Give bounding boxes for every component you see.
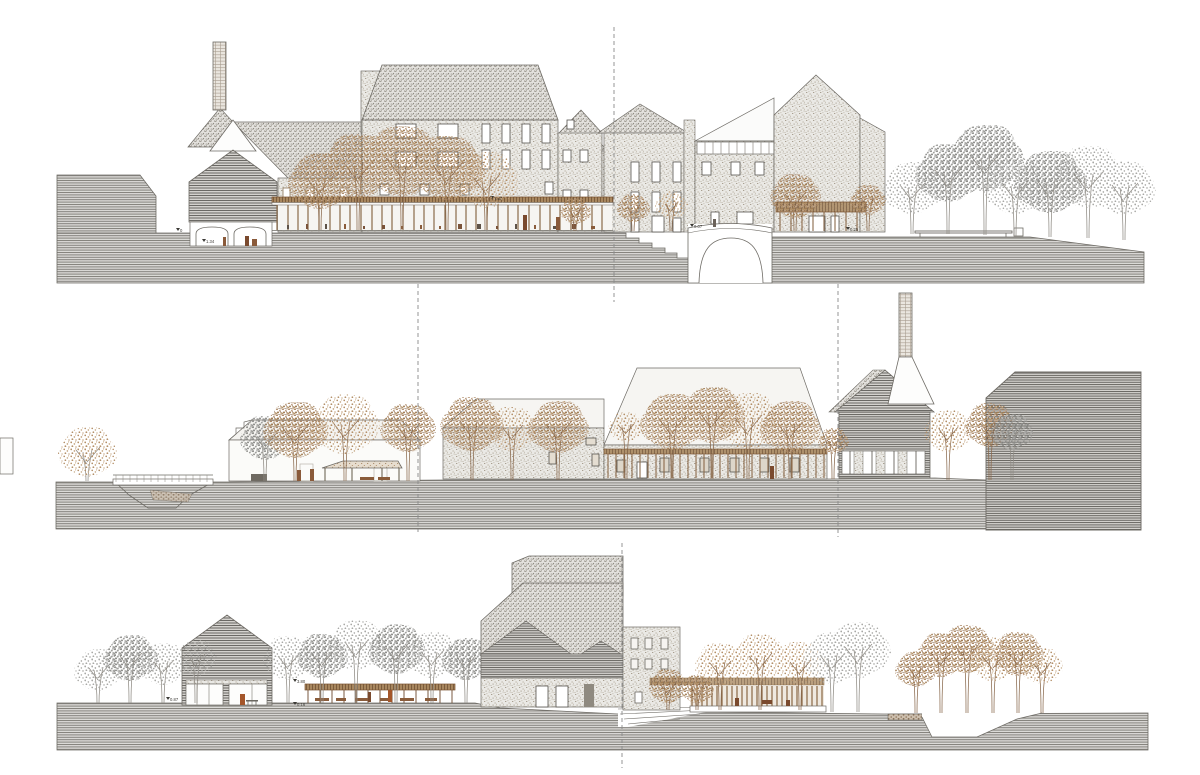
svg-text:1.34: 1.34 [206,239,215,244]
svg-text:0.07: 0.07 [694,224,703,229]
svg-text:0.87: 0.87 [170,697,179,702]
svg-text:0.16: 0.16 [297,702,306,707]
svg-text:3.80: 3.80 [297,679,306,684]
svg-text:0.25: 0.25 [850,227,859,232]
